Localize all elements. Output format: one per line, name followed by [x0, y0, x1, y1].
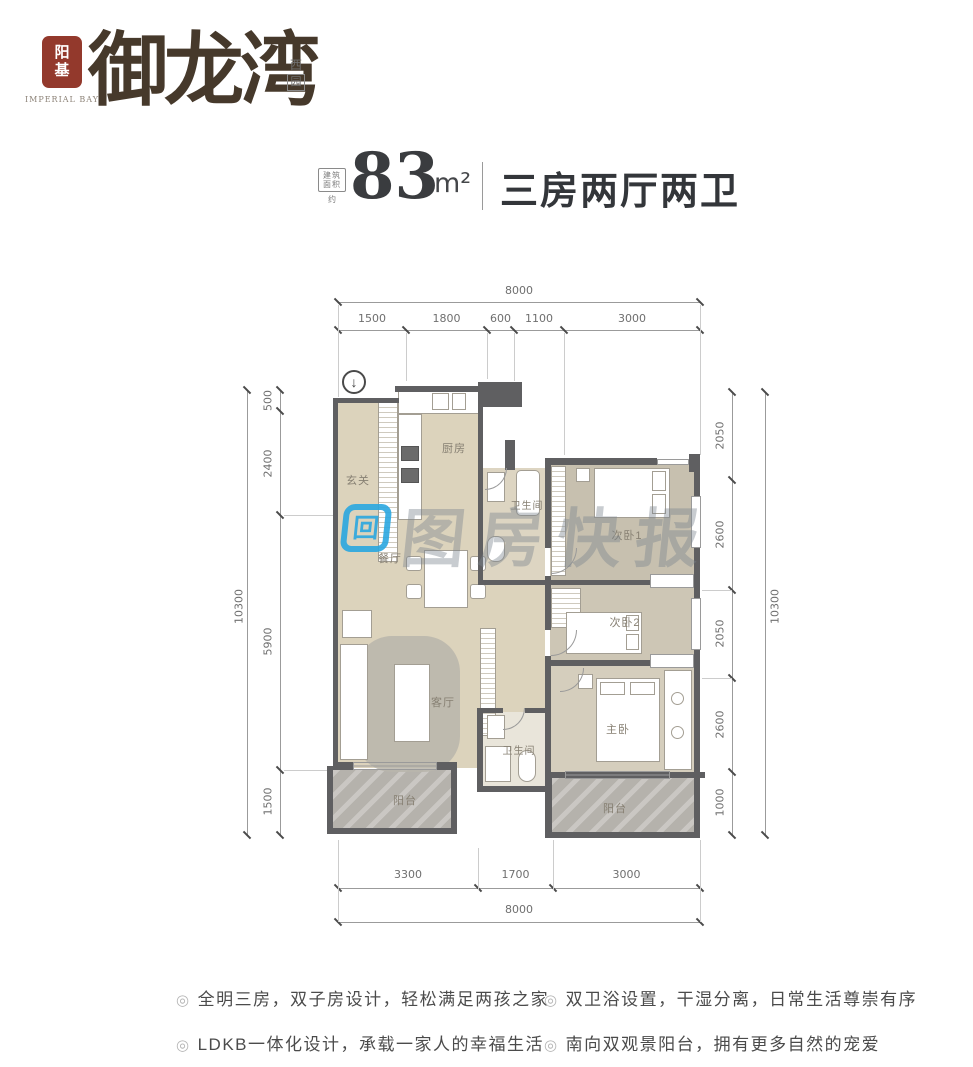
dim-right-seg1: 2050 — [714, 406, 727, 466]
dimension-line — [338, 888, 700, 889]
dim-left-seg4: 1500 — [262, 772, 275, 832]
wall — [545, 458, 657, 465]
area-unit: m² — [434, 168, 471, 199]
dim-right-total: 10300 — [769, 577, 782, 637]
extension-line — [487, 333, 488, 379]
dim-top-seg3: 600 — [487, 312, 514, 325]
dim-bottom-total: 8000 — [338, 903, 700, 916]
nightstand — [576, 468, 590, 482]
feature-text: 全明三房，双子房设计，轻松满足两孩之家 — [198, 990, 550, 1009]
kitchen-sink — [432, 393, 449, 410]
room-label-bath2: 卫生间 — [486, 742, 552, 757]
bullet-icon: ◎ — [544, 1037, 559, 1054]
room-label-kitchen: 厨房 — [426, 440, 482, 456]
bullet-icon: ◎ — [176, 992, 191, 1009]
sofa — [340, 644, 368, 760]
kitchen-sink — [452, 393, 466, 410]
feature-item: ◎LDKB一体化设计，承载一家人的幸福生活 — [176, 1030, 544, 1055]
garden-badge-top: 西 — [287, 58, 305, 72]
wall — [327, 828, 457, 834]
dim-top-seg5: 3000 — [564, 312, 700, 325]
title-divider — [482, 162, 483, 210]
layout-title: 三房两厅两卫 — [500, 160, 740, 215]
extension-line — [700, 305, 701, 455]
watermark-logo-icon: 回 — [339, 504, 392, 552]
dimension-line — [765, 392, 766, 835]
feature-item: ◎双卫浴设置，干湿分离，日常生活尊崇有序 — [544, 985, 917, 1010]
floorplan-flyer: 阳基 IMPERIAL BAY 御龙湾 西 园 建筑 面积 约 83 m² 三房… — [0, 0, 973, 1067]
bullet-icon: ◎ — [544, 992, 559, 1009]
stove — [401, 468, 419, 483]
dim-top-seg2: 1800 — [406, 312, 487, 325]
wardrobe-knob — [671, 692, 684, 705]
wall — [451, 766, 457, 834]
wall — [545, 660, 650, 666]
balcony-door-window — [565, 771, 670, 779]
north-arrow-icon: ↓ — [342, 370, 366, 394]
wall — [333, 762, 353, 770]
wall — [333, 398, 399, 403]
wall — [333, 398, 338, 768]
feature-text: 南向双观景阳台，拥有更多自然的宠爱 — [566, 1035, 881, 1054]
room-label-balcony1: 阳台 — [377, 792, 433, 808]
extension-line — [406, 333, 407, 381]
wall — [545, 832, 700, 838]
bullet-icon: ◎ — [176, 1037, 191, 1054]
area-note-approx: 约 — [318, 194, 346, 205]
wardrobe-knob — [671, 726, 684, 739]
room-label-bed2: 次卧2 — [596, 614, 654, 630]
area-note-stamp: 建筑 面积 约 — [318, 168, 346, 205]
dim-top-seg1: 1500 — [338, 312, 406, 325]
side-table — [342, 610, 372, 638]
room-label-living: 客厅 — [415, 694, 471, 710]
extension-line — [564, 333, 565, 455]
pillow — [630, 682, 655, 695]
garden-badge-bottom: 园 — [287, 74, 305, 91]
brand-seal-text: 阳基 — [52, 44, 73, 80]
dim-left-seg2: 2400 — [262, 434, 275, 494]
wall — [395, 386, 481, 392]
brand-name: 御龙湾 — [88, 8, 288, 133]
garden-badge: 西 园 — [287, 58, 305, 91]
dim-top-seg4: 1100 — [514, 312, 564, 325]
room-label-hallway: 玄关 — [330, 472, 386, 488]
dim-left-seg3: 5900 — [262, 612, 275, 672]
stove — [401, 446, 419, 461]
room-label-master: 主卧 — [590, 721, 646, 737]
room-label-balcony2: 阳台 — [587, 800, 643, 816]
dimension-line — [247, 390, 248, 835]
feature-item: ◎全明三房，双子房设计，轻松满足两孩之家 — [176, 985, 549, 1010]
dim-bottom-seg3: 3000 — [553, 868, 700, 881]
balcony-door-window — [353, 762, 437, 770]
dimension-line — [338, 330, 700, 331]
extension-line — [284, 515, 334, 516]
extension-line — [700, 840, 701, 922]
feature-text: 双卫浴设置，干湿分离，日常生活尊崇有序 — [566, 990, 918, 1009]
bay-window — [691, 598, 701, 650]
brand-seal: 阳基 — [42, 36, 82, 88]
wall — [545, 775, 552, 838]
extension-line — [514, 333, 515, 381]
area-note-box: 建筑 面积 — [318, 168, 346, 192]
area-note-line1: 建筑 — [320, 171, 344, 180]
dimension-line — [338, 302, 700, 303]
wall — [477, 708, 483, 792]
wall — [525, 708, 547, 713]
feature-item: ◎南向双观景阳台，拥有更多自然的宠爱 — [544, 1030, 880, 1055]
master-wardrobe — [664, 670, 692, 770]
dim-top-total: 8000 — [338, 284, 700, 297]
dim-bottom-seg2: 1700 — [478, 868, 553, 881]
area-value: 83 — [350, 142, 439, 212]
dim-left-seg1: 500 — [262, 371, 275, 431]
dining-chair — [406, 584, 422, 599]
dining-chair — [470, 584, 486, 599]
extension-line — [553, 840, 554, 890]
extension-line — [284, 770, 332, 771]
dimension-line — [338, 922, 700, 923]
pillow — [600, 682, 625, 695]
wall — [477, 786, 551, 792]
dim-right-seg3: 2050 — [714, 604, 727, 664]
area-note-line2: 面积 — [320, 180, 344, 189]
wall — [545, 580, 650, 585]
dim-right-seg5: 1000 — [714, 773, 727, 833]
dim-right-seg4: 2600 — [714, 695, 727, 755]
extension-line — [702, 678, 732, 679]
dim-bottom-seg1: 3300 — [338, 868, 478, 881]
watermark-text: 图房快报 — [397, 488, 719, 580]
wall — [478, 382, 522, 407]
pillow — [626, 634, 639, 650]
bay-window — [650, 654, 694, 668]
feature-text: LDKB一体化设计，承载一家人的幸福生活 — [198, 1035, 544, 1054]
dim-left-total: 10300 — [233, 577, 246, 637]
wall — [478, 580, 550, 585]
wall — [505, 440, 515, 470]
wall — [327, 766, 333, 834]
window — [657, 459, 689, 465]
dimension-line — [732, 392, 733, 835]
extension-line — [702, 590, 732, 591]
